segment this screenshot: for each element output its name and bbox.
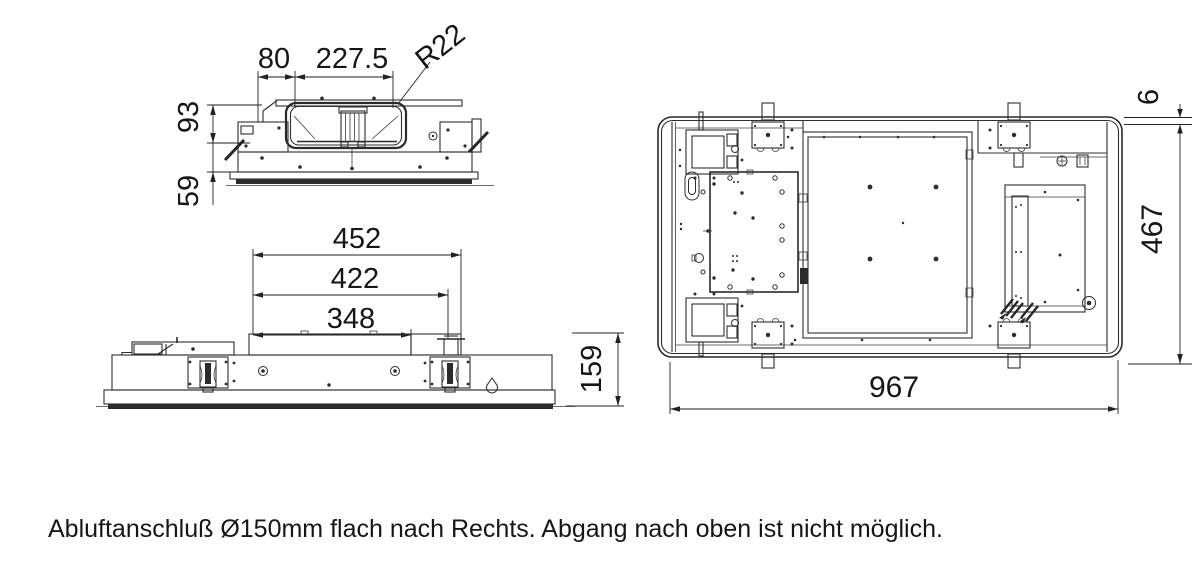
motor-assembly-top [686,112,739,180]
dim-467: 467 [1136,204,1169,254]
caption: Abluftanschluß Ø150mm flach nach Rechts.… [48,515,943,543]
top-right-panel [978,121,1107,167]
dim-348: 348 [327,303,375,335]
dim-59: 59 [173,175,205,207]
mount-bracket-bottom-right [989,319,1031,368]
mount-bracket-bottom-left [752,319,794,368]
dim-6: 6 [1133,89,1165,105]
side-view-body [225,97,494,186]
mount-bracket-top-right [989,103,1031,152]
dim-967: 967 [869,371,919,404]
motor-assembly-bottom [686,293,739,357]
dim-93: 93 [173,101,205,133]
dim-452: 452 [333,223,381,255]
front-view-body [96,331,575,409]
top-view: 6 467 967 [658,89,1192,414]
technical-drawing-page: 80 227.5 R22 93 59 [0,0,1200,573]
left-service-plate [701,170,798,294]
dim-80: 80 [258,43,290,75]
dim-422: 422 [331,263,379,295]
oblong-cutout [685,172,699,200]
central-plate [799,132,973,338]
dim-227-5: 227.5 [316,43,389,75]
suspension-bracket-left [188,357,228,392]
right-duct-section [1005,185,1096,312]
dim-159: 159 [576,345,608,393]
technical-drawing: 80 227.5 R22 93 59 [0,0,1200,573]
side-section-view: 80 227.5 R22 93 59 [173,18,494,207]
suspension-bracket-right [430,357,470,392]
keyhole [486,378,497,393]
front-view: 452 422 348 159 [96,223,624,409]
dim-r22: R22 [410,18,472,76]
mount-bracket-top-left [752,103,794,152]
